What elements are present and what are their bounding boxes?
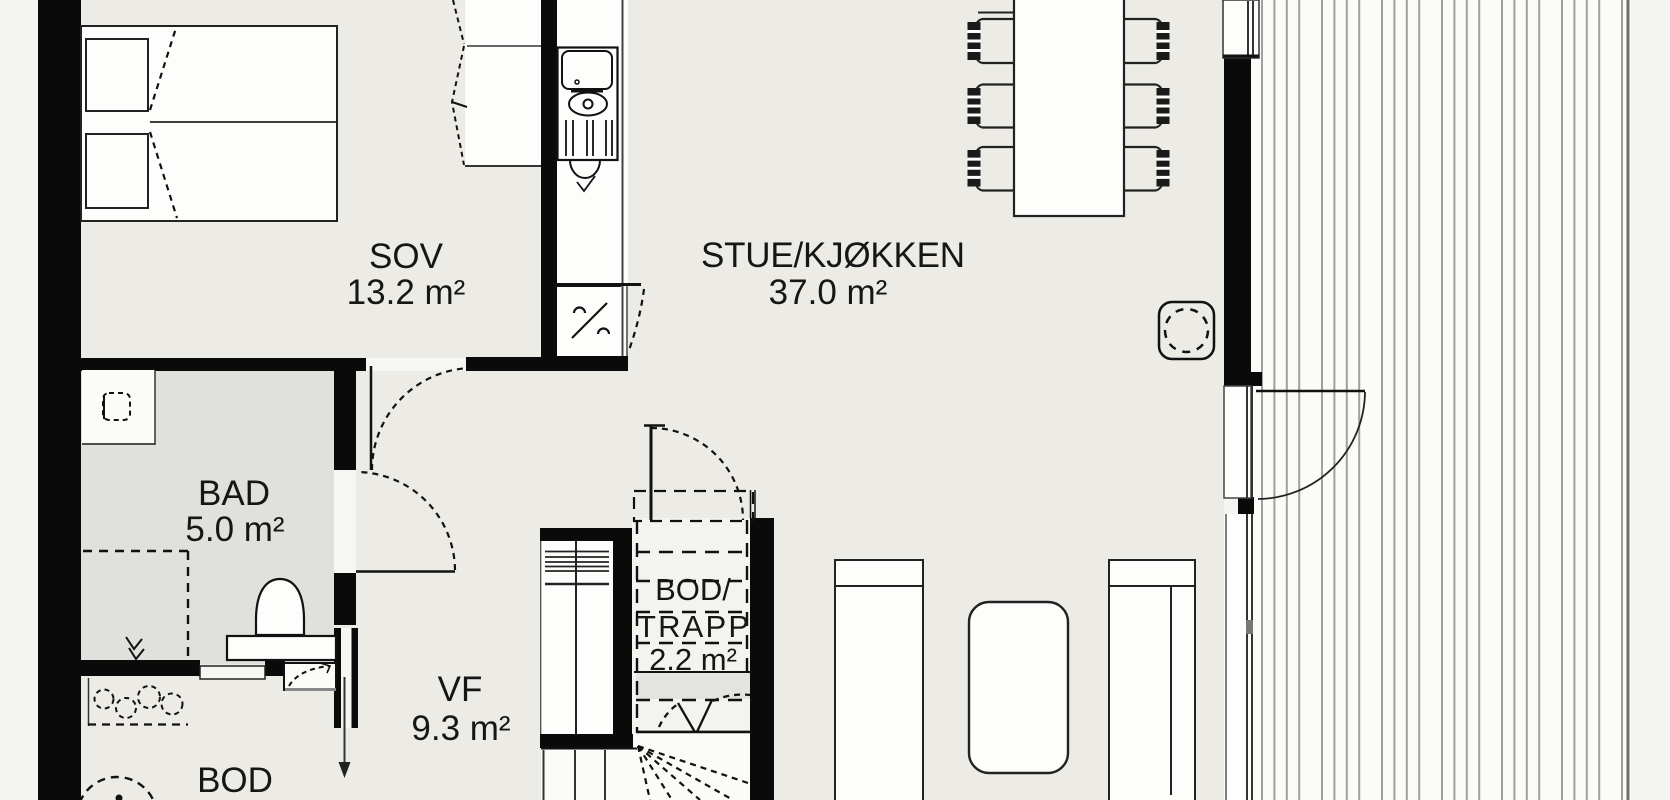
svg-text:2.2 m²: 2.2 m²	[649, 642, 737, 677]
svg-text:5.0 m²: 5.0 m²	[185, 510, 284, 549]
svg-text:37.0 m²: 37.0 m²	[769, 273, 888, 312]
svg-text:BAD: BAD	[198, 474, 270, 513]
svg-text:SOV: SOV	[369, 237, 444, 276]
svg-text:TRAPP: TRAPP	[637, 609, 749, 644]
svg-text:13.2 m²: 13.2 m²	[347, 273, 466, 312]
svg-text:9.3 m²: 9.3 m²	[411, 709, 510, 748]
svg-text:BOD: BOD	[197, 761, 273, 800]
svg-text:VF: VF	[438, 670, 483, 709]
svg-text:BOD/: BOD/	[655, 572, 731, 607]
svg-text:STUE/KJØKKEN: STUE/KJØKKEN	[701, 236, 965, 275]
